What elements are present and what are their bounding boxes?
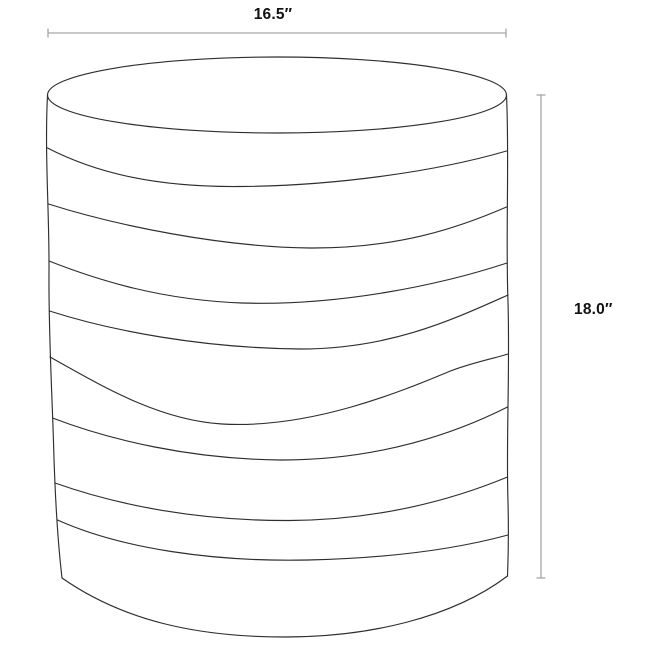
width-dimension: 16.5″ [48,6,506,38]
table-left-edge [47,95,62,578]
grain-line-2 [49,204,507,248]
grain-line-6 [53,407,508,460]
grain-line-1 [48,148,507,187]
width-dimension-label: 16.5″ [254,6,293,23]
table-right-edge [507,95,509,576]
grain-line-7 [55,477,508,521]
diagram-svg: 16.5″ 18.0″ [0,0,648,648]
height-dimension-label: 18.0″ [574,301,613,318]
width-dimension-line [48,29,506,38]
height-dimension-line [537,95,546,578]
table-bottom-edge [62,576,508,637]
table-top-ellipse [48,57,507,133]
dimension-diagram: 16.5″ 18.0″ [0,0,648,648]
grain-line-8 [58,520,509,560]
grain-line-5 [50,354,508,424]
height-dimension: 18.0″ [537,95,613,578]
side-table-line-drawing [47,57,509,637]
grain-line-3 [49,261,507,303]
